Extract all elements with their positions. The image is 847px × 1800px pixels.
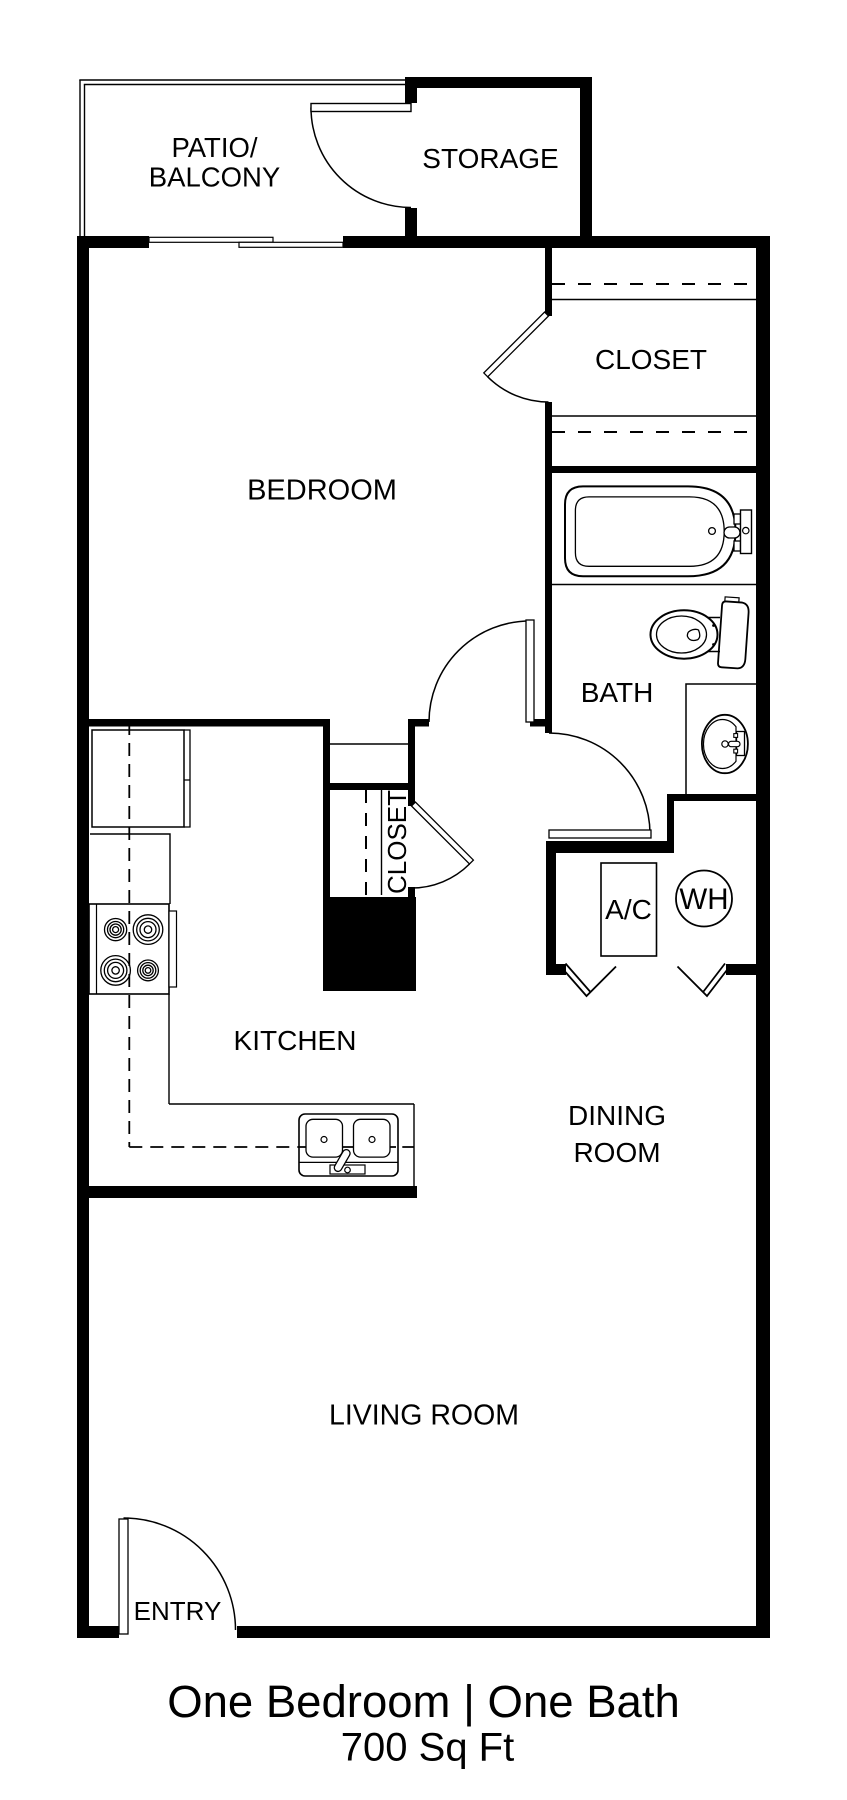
svg-text:DINING: DINING	[568, 1100, 666, 1131]
svg-text:STORAGE: STORAGE	[422, 143, 558, 174]
svg-text:CLOSET: CLOSET	[382, 790, 412, 894]
svg-text:One Bedroom | One Bath: One Bedroom | One Bath	[167, 1676, 680, 1727]
svg-text:ROOM: ROOM	[573, 1137, 660, 1168]
svg-text:CLOSET: CLOSET	[595, 344, 707, 375]
svg-text:WH: WH	[679, 883, 728, 916]
svg-text:PATIO/: PATIO/	[171, 132, 257, 163]
svg-text:BATH: BATH	[581, 677, 654, 708]
svg-text:KITCHEN: KITCHEN	[234, 1025, 357, 1056]
svg-text:700 Sq Ft: 700 Sq Ft	[341, 1726, 514, 1770]
svg-text:LIVING ROOM: LIVING ROOM	[329, 1400, 519, 1432]
svg-text:A/C: A/C	[605, 894, 652, 925]
svg-text:BEDROOM: BEDROOM	[247, 475, 397, 507]
svg-text:BALCONY: BALCONY	[149, 162, 280, 193]
svg-text:ENTRY: ENTRY	[134, 1596, 222, 1626]
